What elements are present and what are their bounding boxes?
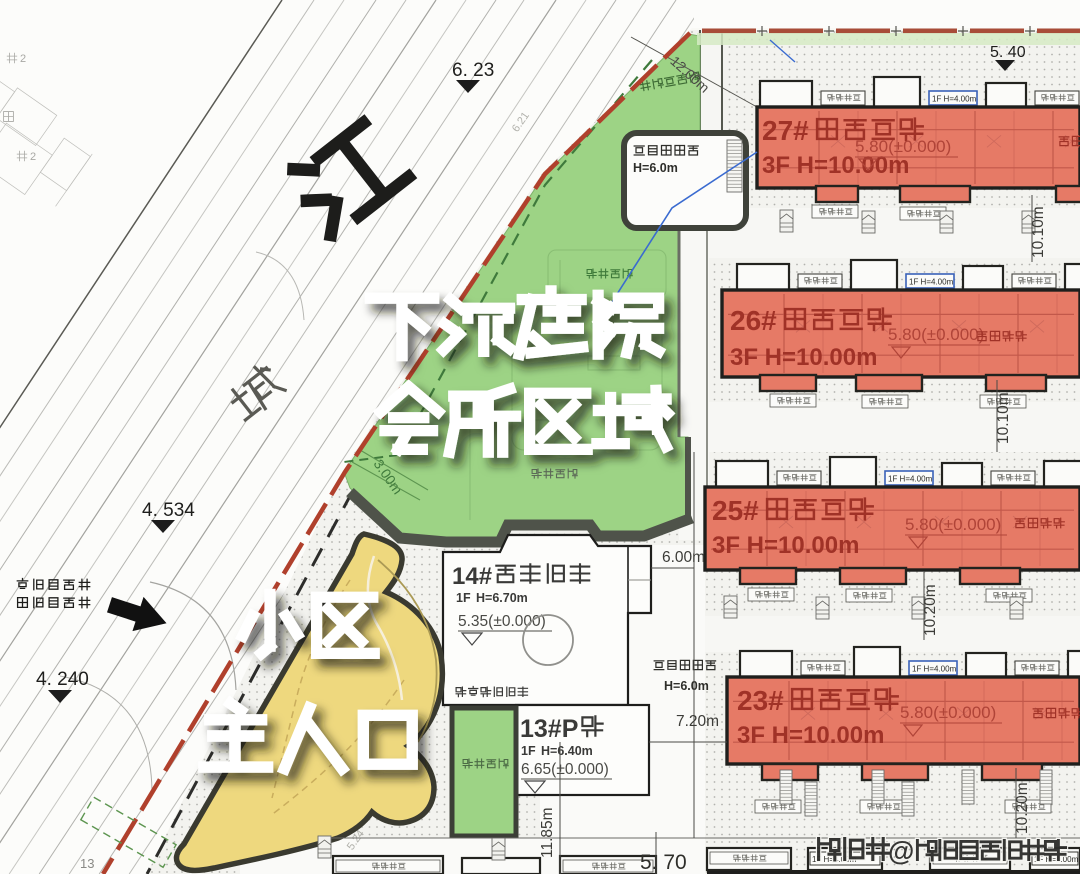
svg-text:H=6.0m: H=6.0m bbox=[664, 679, 709, 693]
svg-text:2: 2 bbox=[30, 151, 36, 163]
svg-text:10.20m: 10.20m bbox=[922, 584, 939, 636]
svg-text:3F H=10.00m: 3F H=10.00m bbox=[737, 722, 884, 749]
svg-text:3F H=10.00m: 3F H=10.00m bbox=[762, 152, 909, 179]
svg-text:1F H=4.00m: 1F H=4.00m bbox=[888, 475, 933, 484]
svg-text:1F H=4.00m: 1F H=4.00m bbox=[909, 278, 954, 287]
svg-text:4. 240: 4. 240 bbox=[36, 669, 89, 690]
svg-text:10.20m: 10.20m bbox=[1014, 782, 1031, 834]
svg-text:@: @ bbox=[888, 836, 914, 866]
svg-text:4. 534: 4. 534 bbox=[142, 500, 195, 521]
svg-text:3F H=10.00m: 3F H=10.00m bbox=[712, 532, 859, 559]
svg-text:25#: 25# bbox=[712, 495, 759, 526]
svg-text:10.10m: 10.10m bbox=[995, 392, 1012, 444]
svg-text:1F: 1F bbox=[521, 744, 536, 758]
svg-text:1F: 1F bbox=[456, 591, 471, 605]
svg-text:5. 40: 5. 40 bbox=[990, 44, 1026, 61]
svg-text:2: 2 bbox=[20, 53, 26, 65]
svg-text:H=6.70m: H=6.70m bbox=[476, 591, 528, 605]
svg-text:5.35(±0.000): 5.35(±0.000) bbox=[458, 613, 546, 630]
svg-text:H=6.40m: H=6.40m bbox=[541, 744, 593, 758]
svg-text:5.80(±0.000): 5.80(±0.000) bbox=[900, 703, 996, 722]
svg-text:26#: 26# bbox=[730, 305, 777, 336]
svg-text:1F H=4.00m: 1F H=4.00m bbox=[932, 95, 977, 104]
svg-text:13: 13 bbox=[80, 856, 94, 871]
svg-text:H=6.0m: H=6.0m bbox=[633, 161, 678, 175]
svg-text:10.10m: 10.10m bbox=[1030, 206, 1047, 258]
svg-text:5.80(±0.000): 5.80(±0.000) bbox=[905, 515, 1001, 534]
svg-text:1F H=4.00m: 1F H=4.00m bbox=[912, 665, 957, 674]
svg-text:7.20m: 7.20m bbox=[676, 713, 719, 730]
svg-text:23#: 23# bbox=[737, 685, 784, 716]
svg-text:3F H=10.00m: 3F H=10.00m bbox=[730, 344, 877, 371]
svg-text:6.00m: 6.00m bbox=[662, 549, 705, 566]
svg-text:5.80(±0.000): 5.80(±0.000) bbox=[855, 137, 951, 156]
svg-text:6.65(±0.000): 6.65(±0.000) bbox=[521, 761, 609, 778]
svg-text:11.85m: 11.85m bbox=[539, 807, 556, 858]
svg-text:13#P: 13#P bbox=[520, 715, 578, 743]
svg-text:5.80(±0.000): 5.80(±0.000) bbox=[888, 325, 984, 344]
svg-text:6. 23: 6. 23 bbox=[452, 60, 494, 81]
svg-text:27#: 27# bbox=[762, 115, 809, 146]
svg-text:5. 70: 5. 70 bbox=[640, 851, 687, 874]
svg-text:14#: 14# bbox=[452, 563, 492, 590]
